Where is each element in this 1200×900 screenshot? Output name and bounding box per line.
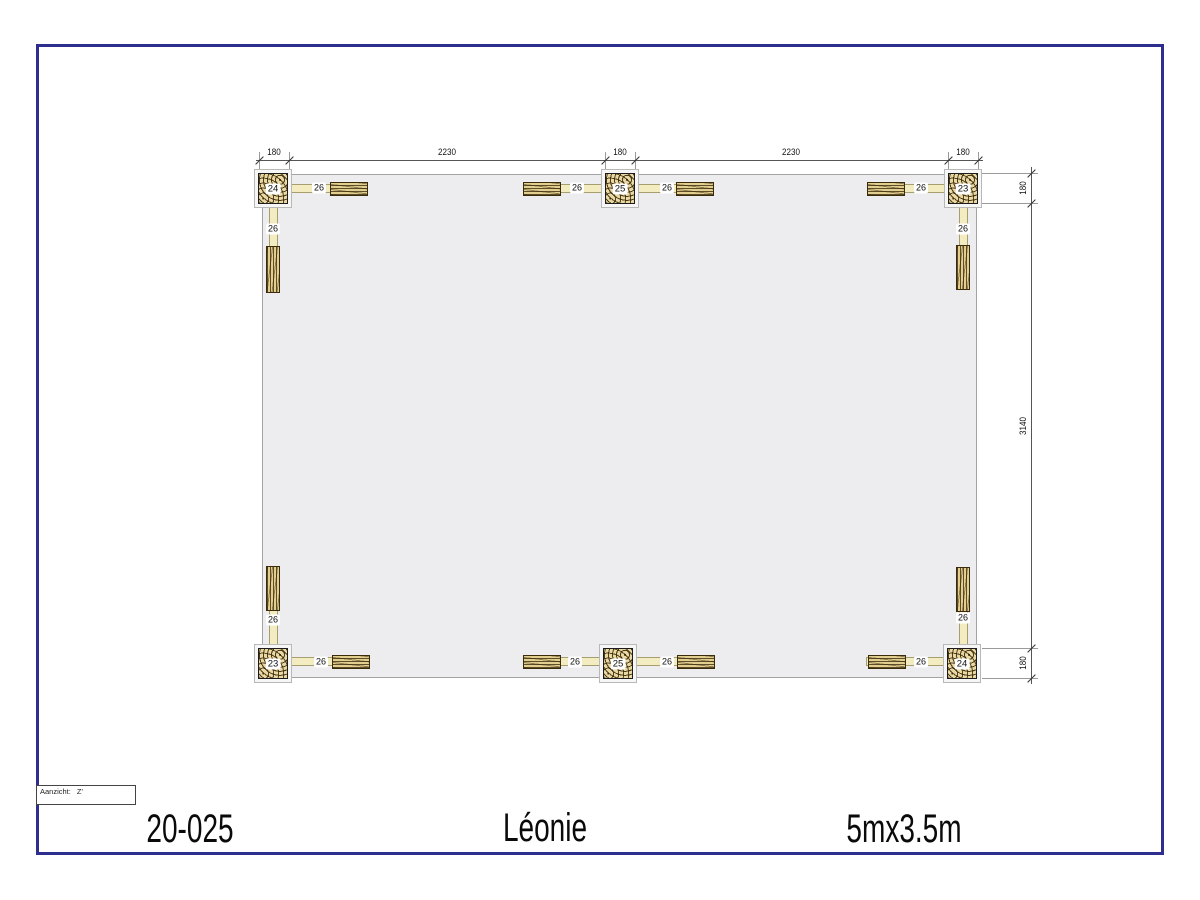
- beam-wood-texture: [332, 655, 370, 669]
- dim-label-top-2230-right: 2230: [782, 148, 800, 158]
- view-value: Z': [77, 787, 83, 796]
- beam-wood-texture: [266, 246, 280, 293]
- drawing-number: 20-025: [146, 809, 233, 849]
- beam-wood-texture: [867, 182, 905, 196]
- part-number-label: 26: [914, 183, 928, 194]
- dim-label-top-180-right: 180: [956, 148, 969, 158]
- beam-wood-texture: [523, 655, 561, 669]
- beam-wood-texture: [266, 566, 280, 611]
- drawing-title: Léonie: [503, 808, 587, 848]
- beam-wood-texture: [956, 567, 970, 612]
- beam-wood-texture: [523, 182, 561, 196]
- part-number-label: 26: [914, 657, 928, 668]
- view-label: Aanzicht:: [40, 787, 71, 796]
- post-top-left: 24: [258, 173, 288, 204]
- view-label-box: Aanzicht:Z': [36, 785, 136, 805]
- post-bottom-left: 23: [258, 648, 288, 679]
- post-top-middle: 25: [605, 173, 635, 204]
- floor-plan-deck: [262, 174, 977, 678]
- part-number-label: 23: [956, 183, 971, 194]
- part-number-label: 26: [660, 183, 674, 194]
- dim-label-top-180-middle: 180: [613, 148, 626, 158]
- part-number-label: 26: [312, 183, 326, 194]
- drawing-sheet: 180 2230 180 2230 180 180 3140 180 26 26…: [0, 0, 1200, 900]
- beam-wood-texture: [956, 245, 970, 290]
- dimension-line-right: [1031, 167, 1032, 684]
- dim-label-right-180-bottom: 180: [1019, 656, 1029, 669]
- part-number-label: 26: [956, 613, 970, 624]
- part-number-label: 26: [568, 657, 582, 668]
- part-number-label: 25: [613, 183, 628, 194]
- beam-wood-texture: [868, 655, 906, 669]
- part-number-label: 26: [266, 224, 280, 235]
- part-number-label: 26: [314, 657, 328, 668]
- part-number-label: 23: [266, 658, 281, 669]
- beam-wood-texture: [677, 655, 715, 669]
- dim-label-right-3140: 3140: [1019, 417, 1029, 435]
- part-number-label: 25: [611, 658, 626, 669]
- post-top-right: 23: [948, 173, 978, 204]
- dim-label-top-180-left: 180: [267, 148, 280, 158]
- part-number-label: 26: [660, 657, 674, 668]
- dim-label-right-180-top: 180: [1019, 181, 1029, 194]
- part-number-label: 24: [266, 183, 281, 194]
- dim-label-top-2230-left: 2230: [438, 148, 456, 158]
- part-number-label: 26: [956, 224, 970, 235]
- post-bottom-middle: 25: [603, 648, 633, 679]
- dimension-line-top: [256, 160, 983, 161]
- part-number-label: 26: [266, 615, 280, 626]
- beam-wood-texture: [330, 182, 368, 196]
- part-number-label: 26: [570, 183, 584, 194]
- post-bottom-right: 24: [947, 648, 977, 679]
- drawing-size: 5mx3.5m: [846, 809, 961, 849]
- beam-wood-texture: [676, 182, 714, 196]
- part-number-label: 24: [955, 658, 970, 669]
